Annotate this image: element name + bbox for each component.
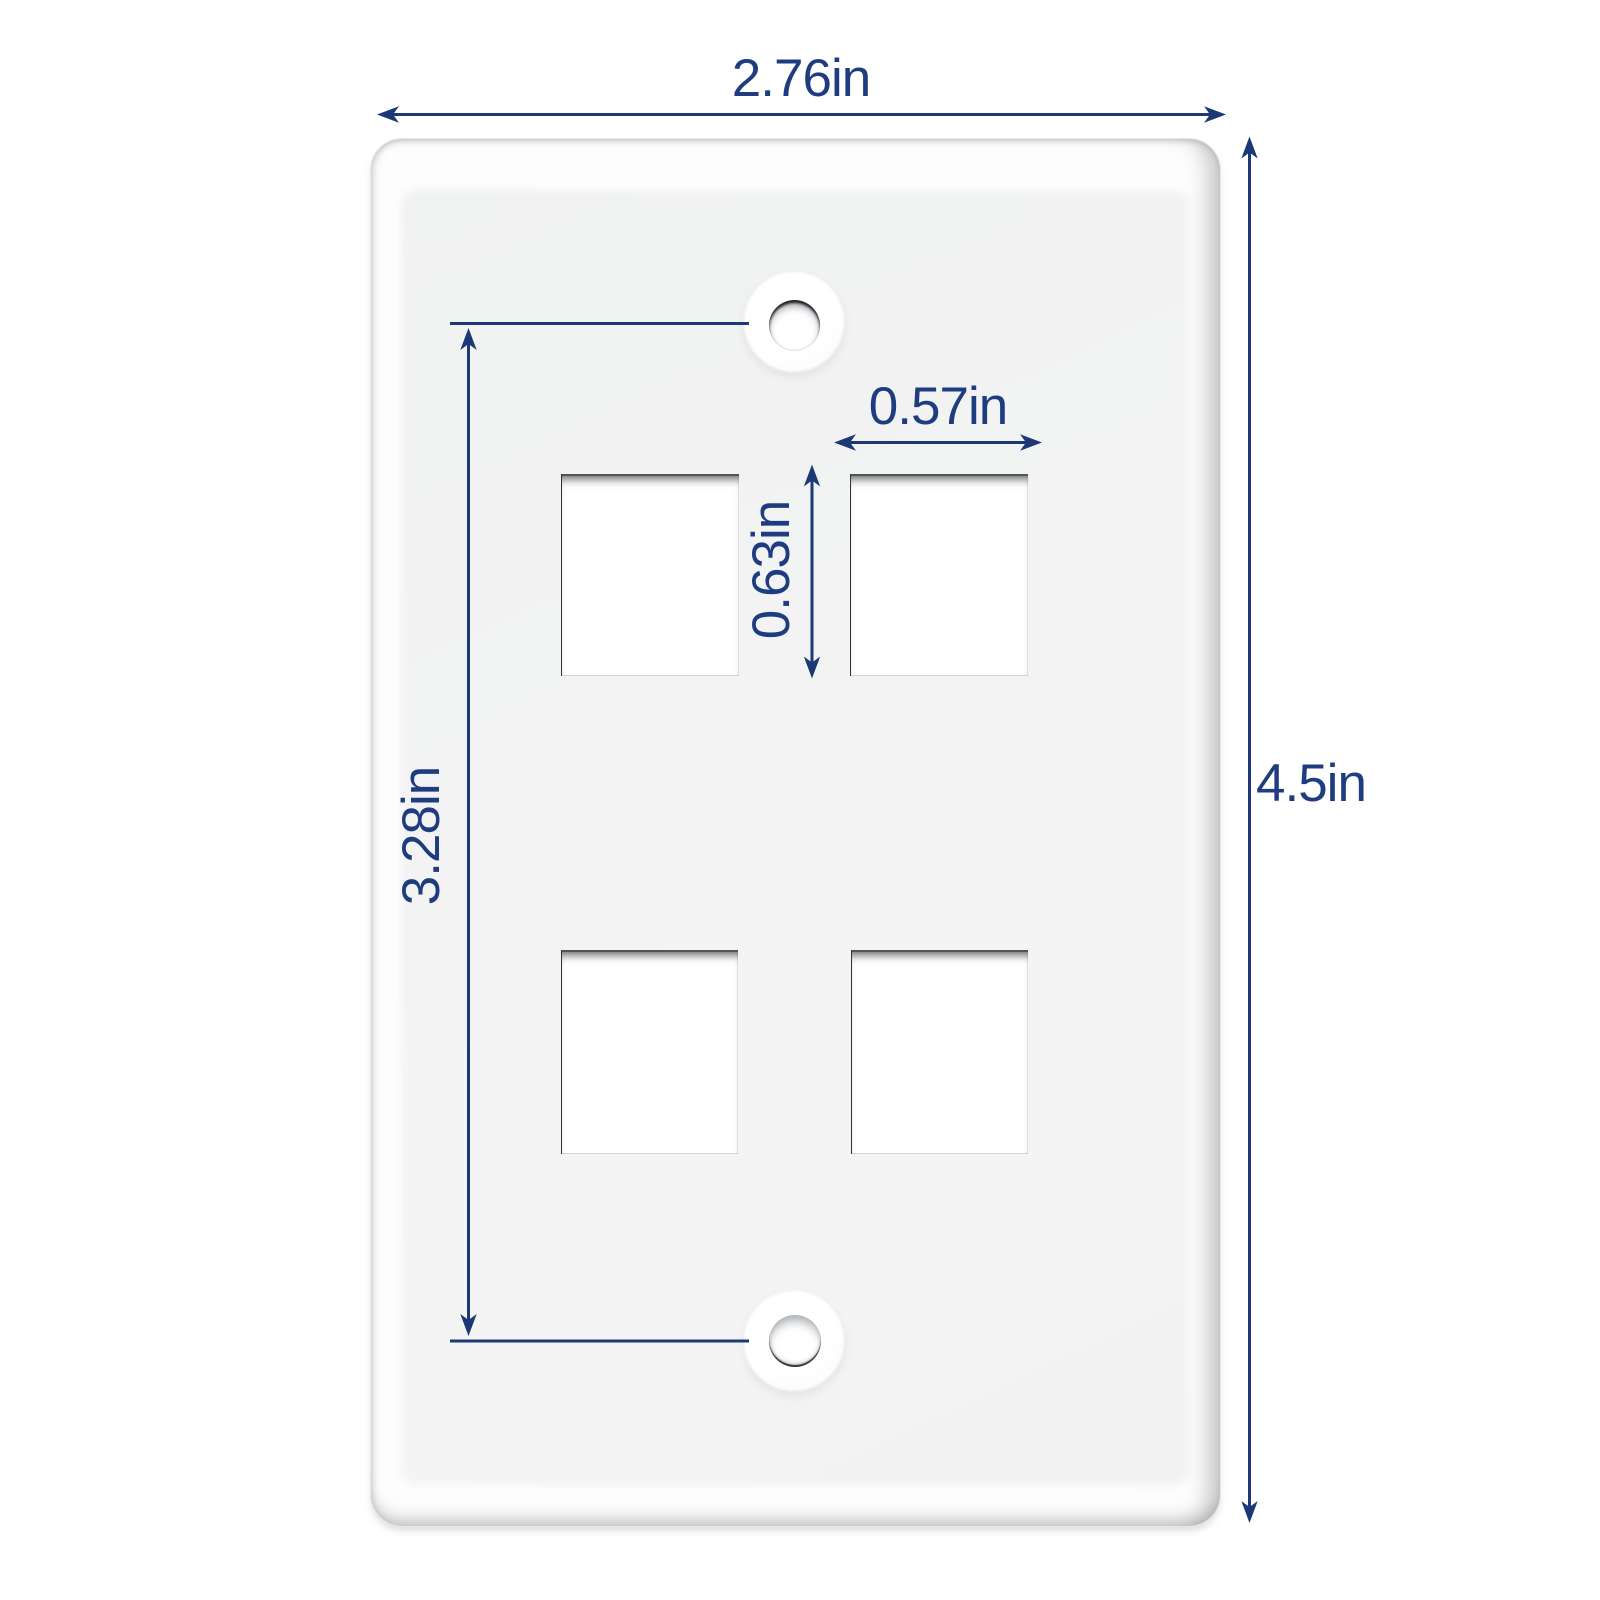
svg-text:3.28in: 3.28in bbox=[392, 767, 451, 905]
svg-text:0.57in: 0.57in bbox=[869, 377, 1007, 436]
svg-text:0.63in: 0.63in bbox=[742, 501, 801, 639]
svg-text:4.5in: 4.5in bbox=[1256, 754, 1366, 813]
svg-text:2.76in: 2.76in bbox=[732, 49, 870, 108]
